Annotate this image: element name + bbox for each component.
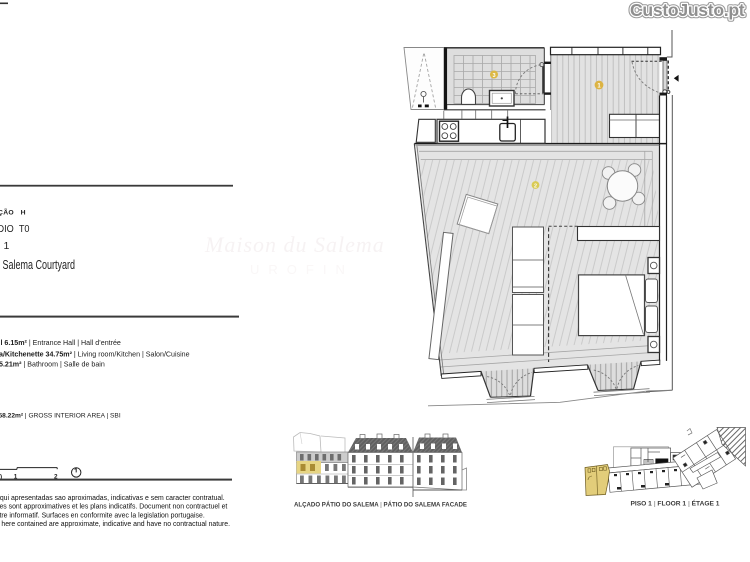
svg-text:ÇÃO H: ÇÃO H: [0, 208, 26, 217]
svg-text:ALÇADO PÁTIO DO SALEMA | PÁTIO: ALÇADO PÁTIO DO SALEMA | PÁTIO DO SALEMA…: [294, 500, 467, 509]
svg-text:s here contained are approxima: s here contained are approximate, indica…: [0, 521, 230, 528]
svg-text:58.22m² | GROSS INTERIOR AREA: 58.22m² | GROSS INTERIOR AREA | SBI: [0, 412, 121, 419]
svg-text:PISO 1 | FLOOR 1 | ÉTAGE 1: PISO 1 | FLOOR 1 | ÉTAGE 1: [631, 499, 720, 508]
svg-text:2: 2: [534, 183, 537, 189]
svg-text:aqui apresentadas sao aproxima: aqui apresentadas sao aproximadas, indic…: [0, 495, 225, 502]
svg-text:CustoJusto.pt: CustoJusto.pt: [630, 0, 745, 20]
svg-text:Maison du Salema: Maison du Salema: [204, 232, 385, 257]
svg-text:ll 6.15m² | Entrance Hall | Ha: ll 6.15m² | Entrance Hall | Hall d’entré…: [0, 339, 121, 347]
svg-text:a/Kitchenette 34.75m² | Living: a/Kitchenette 34.75m² | Living room/Kitc…: [0, 350, 190, 358]
svg-text:DIO T0: DIO T0: [0, 223, 30, 235]
svg-text:1: 1: [4, 240, 10, 252]
svg-text:UROFIN: UROFIN: [250, 262, 354, 277]
svg-text:titre informatif. Surfaces en: titre informatif. Surfaces en conformite…: [0, 512, 205, 519]
svg-text:ces sont approximatives et les: ces sont approximatives et les plans ind…: [0, 504, 227, 511]
svg-text:3: 3: [492, 73, 495, 79]
svg-text:o Salema Courtyard: o Salema Courtyard: [0, 258, 75, 272]
svg-text:5.21m² | Bathroom | Salle de b: 5.21m² | Bathroom | Salle de bain: [0, 361, 105, 369]
